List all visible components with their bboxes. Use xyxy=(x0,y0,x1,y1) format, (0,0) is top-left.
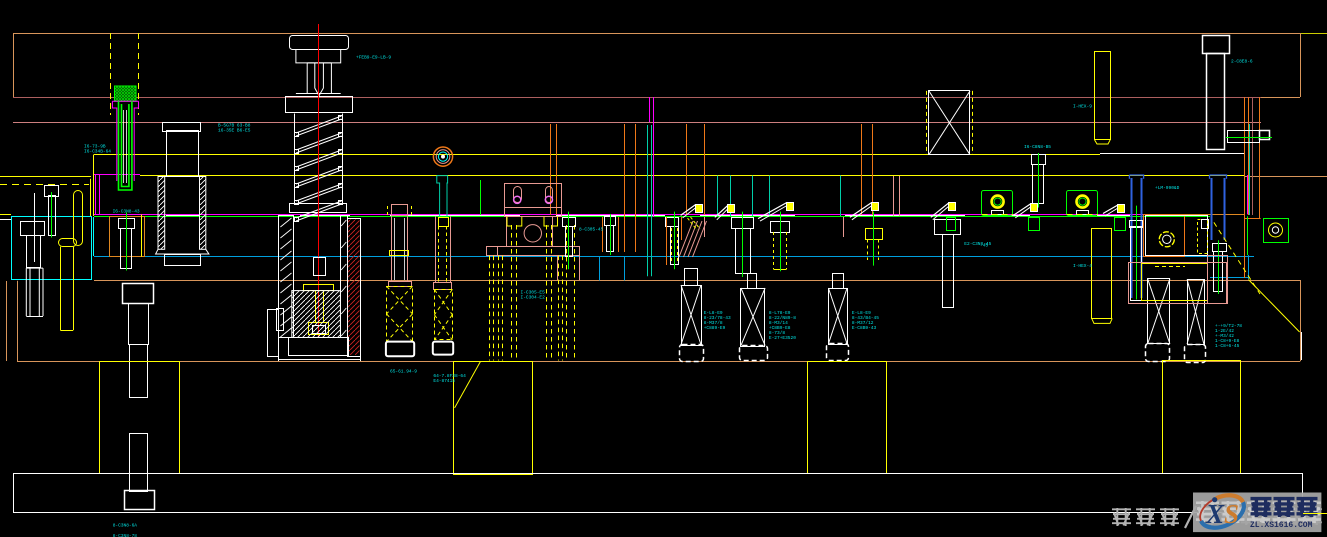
svg-text:65-61.94-9: 65-61.94-9 xyxy=(390,368,417,374)
svg-text:8-C305-45: 8-C305-45 xyxy=(579,227,604,233)
svg-text:I6-C34B-64: I6-C34B-64 xyxy=(84,149,111,155)
svg-text:E4-87415: E4-87415 xyxy=(433,378,455,384)
svg-text:I-HEX-9: I-HEX-9 xyxy=(1073,104,1092,110)
svg-text:X: X xyxy=(1205,499,1225,529)
svg-text:I6-C3N8-43: I6-C3N8-43 xyxy=(113,209,140,215)
svg-text:+C889-E9: +C889-E9 xyxy=(704,325,726,331)
svg-text:-45: -45 xyxy=(980,242,988,248)
svg-text:+LM-990&D: +LM-990&D xyxy=(1155,185,1180,191)
svg-text:2-C8E8-6: 2-C8E8-6 xyxy=(1231,59,1253,65)
svg-text:E-27+E3520: E-27+E3520 xyxy=(769,335,796,341)
svg-text:8-C3N8-6A: 8-C3N8-6A xyxy=(113,523,138,529)
svg-text:S: S xyxy=(1224,499,1239,529)
svg-text:I6-C8N8-B5: I6-C8N8-B5 xyxy=(1024,144,1051,150)
svg-text:ZL.XS1616.COM: ZL.XS1616.COM xyxy=(1250,521,1313,530)
svg-text:I-HEX-4: I-HEX-4 xyxy=(1073,263,1092,269)
svg-text:+FEB9-E9-LB-9: +FEB9-E9-LB-9 xyxy=(356,55,391,61)
svg-text:1-C8+6-45: 1-C8+6-45 xyxy=(1215,343,1240,349)
svg-text:8-C3N8-78: 8-C3N8-78 xyxy=(113,533,138,537)
svg-text:E-C8B9-43: E-C8B9-43 xyxy=(852,325,877,331)
svg-text:16-35E B6-E5: 16-35E B6-E5 xyxy=(218,128,251,134)
svg-text:I-C304-E2: I-C304-E2 xyxy=(521,294,546,300)
